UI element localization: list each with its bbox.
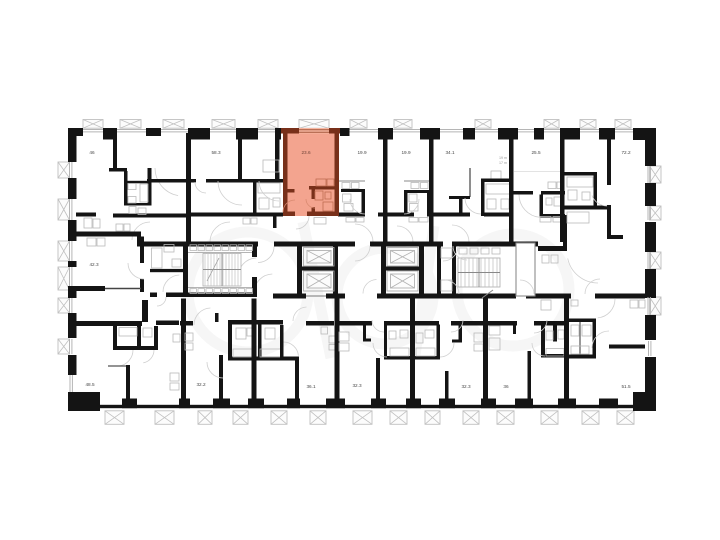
svg-text:48.5: 48.5 xyxy=(85,382,95,387)
svg-text:72.2: 72.2 xyxy=(621,150,631,155)
svg-text:32.2: 32.2 xyxy=(196,382,206,387)
svg-text:32.3: 32.3 xyxy=(461,384,471,389)
svg-text:36.1: 36.1 xyxy=(306,384,316,389)
svg-text:34.1: 34.1 xyxy=(445,150,455,155)
svg-text:58.3: 58.3 xyxy=(211,150,221,155)
svg-text:19 m: 19 m xyxy=(499,156,507,160)
svg-text:36: 36 xyxy=(503,384,509,389)
svg-text:23.6: 23.6 xyxy=(301,150,311,155)
svg-text:46: 46 xyxy=(89,150,95,155)
svg-text:17 m: 17 m xyxy=(499,161,507,165)
svg-text:42.3: 42.3 xyxy=(89,262,99,267)
svg-text:19.9: 19.9 xyxy=(357,150,367,155)
svg-text:25.5: 25.5 xyxy=(531,150,541,155)
svg-text:32.3: 32.3 xyxy=(352,383,362,388)
svg-text:51.5: 51.5 xyxy=(621,384,631,389)
svg-text:19.9: 19.9 xyxy=(401,150,411,155)
